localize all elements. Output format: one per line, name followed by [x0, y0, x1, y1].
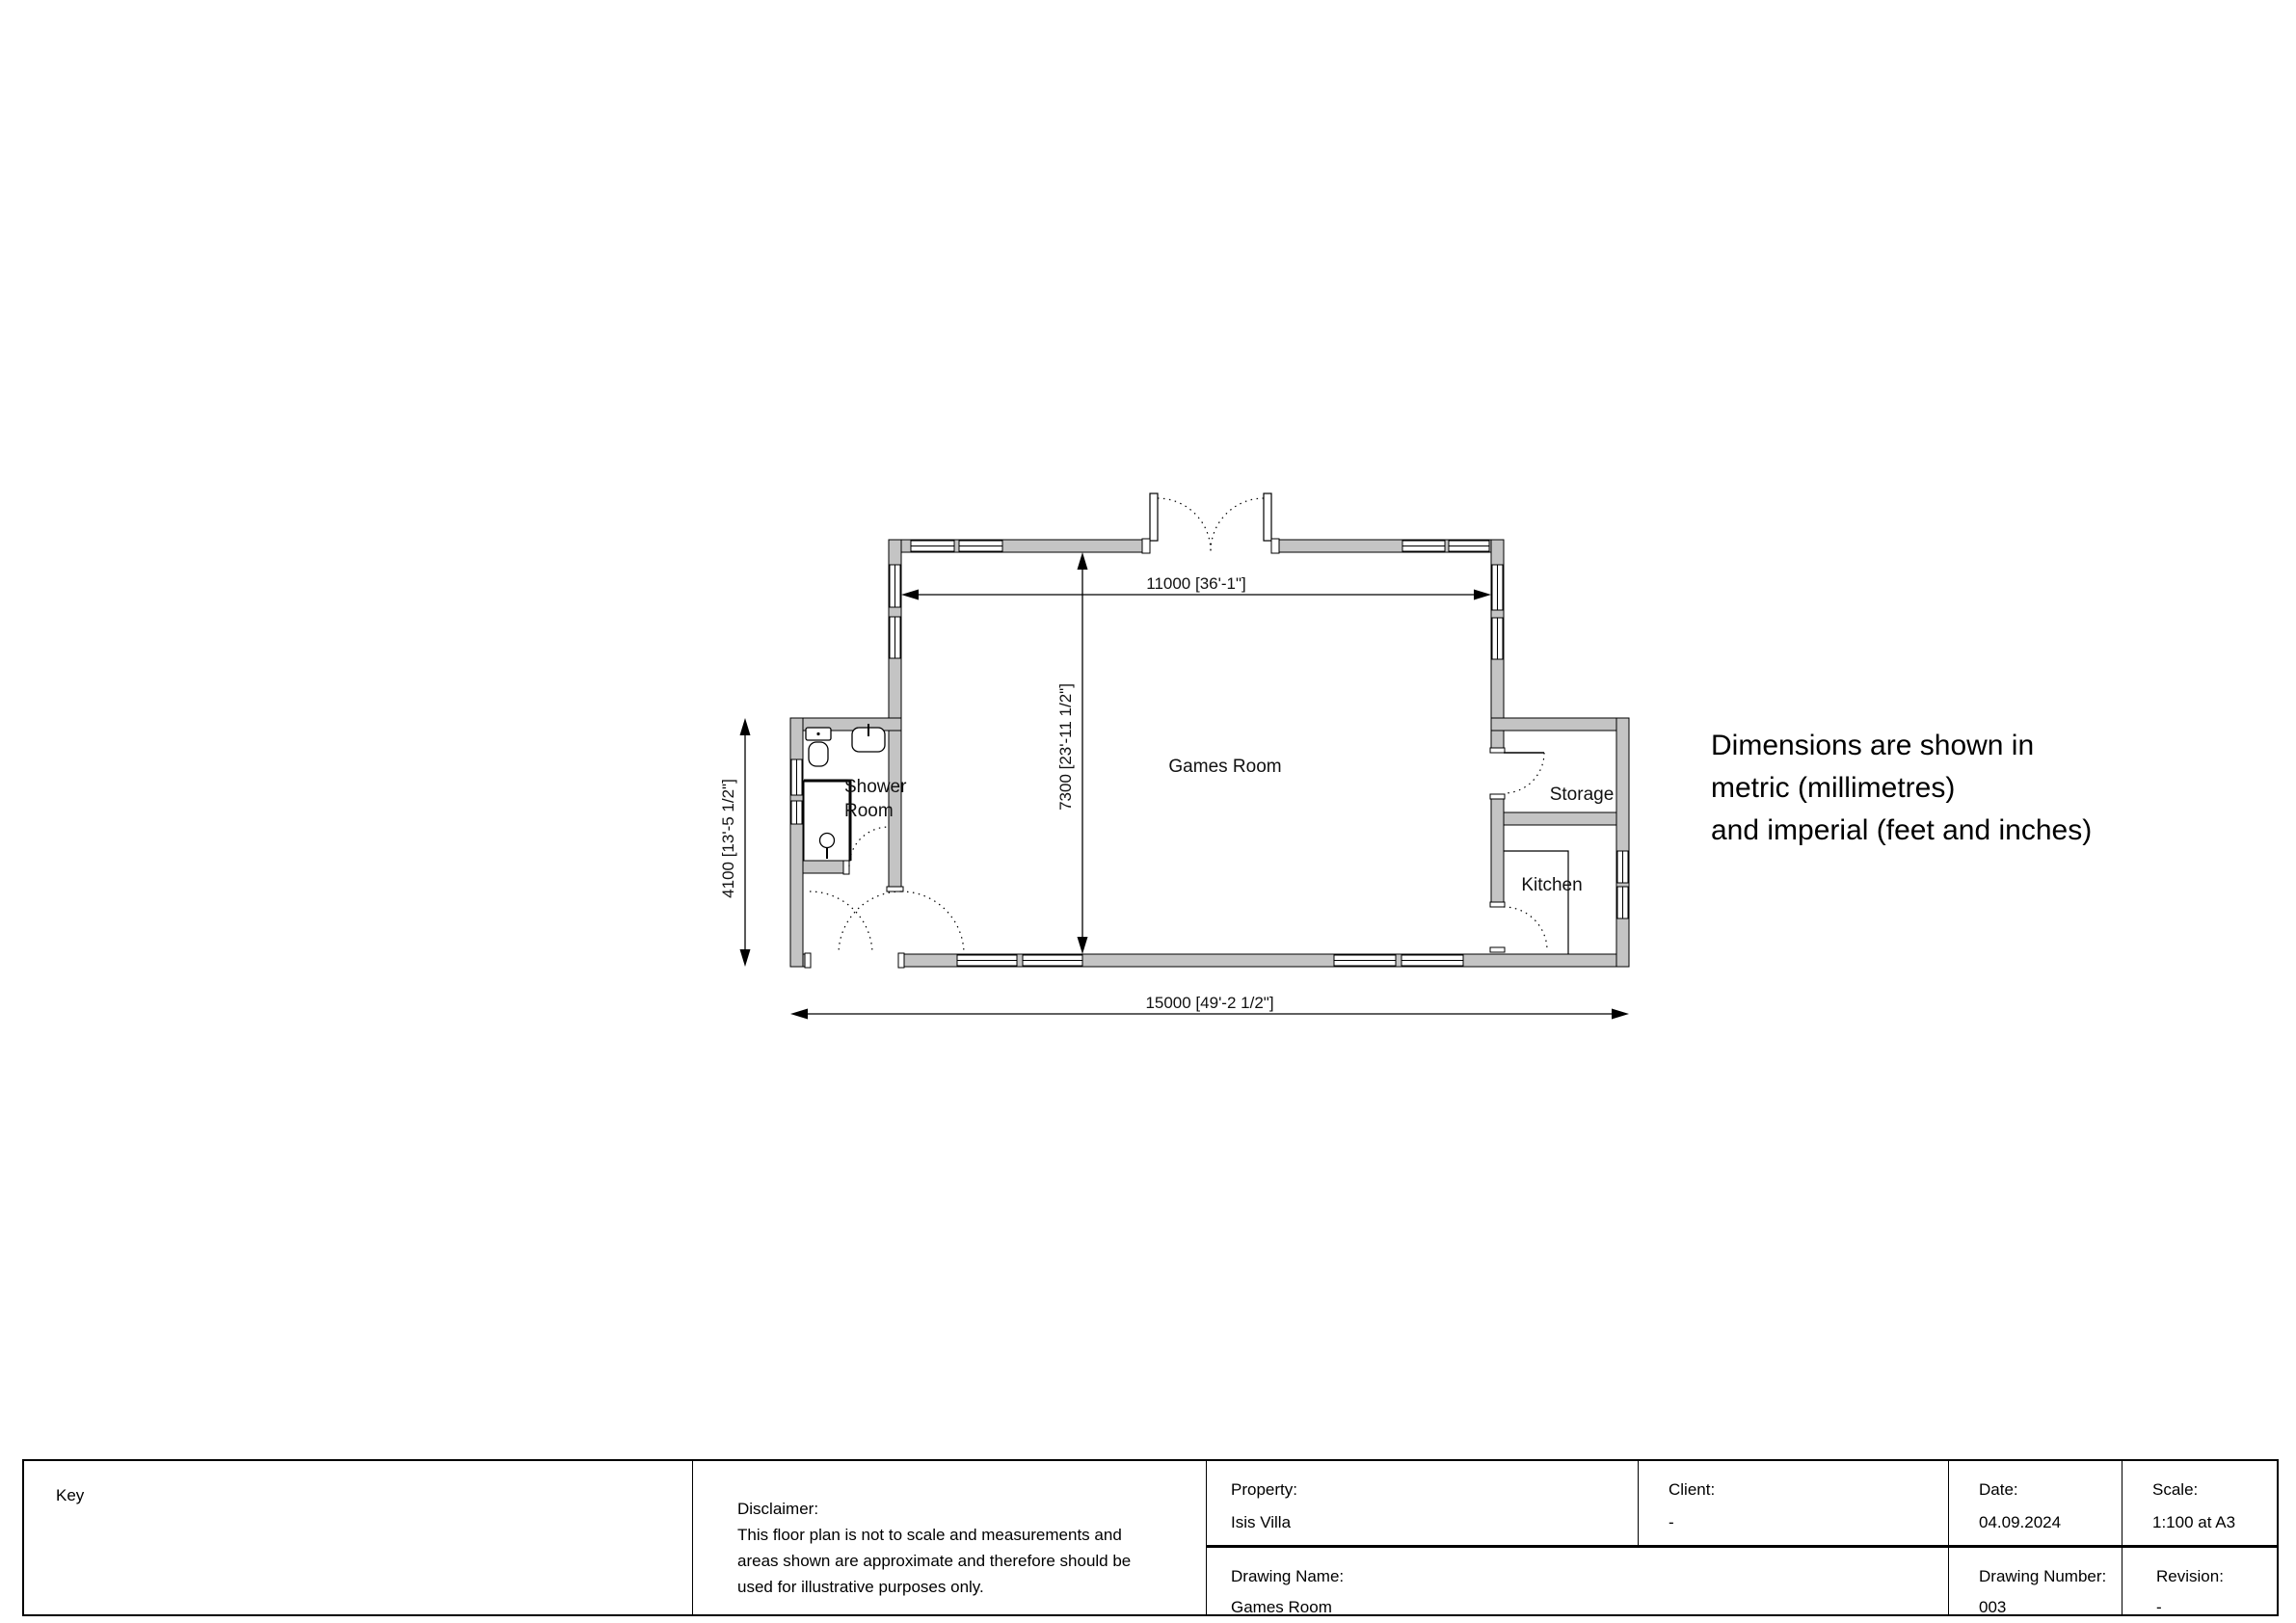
arrowhead [901, 590, 919, 600]
door-swing-arcs-group [810, 498, 1547, 954]
date-value: 04.09.2024 [1979, 1513, 2061, 1532]
toilet-button [816, 732, 819, 735]
jamb [843, 860, 849, 874]
units-annotation: Dimensions are shown in metric (millimet… [1711, 725, 2092, 852]
shower-door-arc [849, 827, 889, 866]
arrowhead [790, 1009, 808, 1020]
arrowhead [1612, 1009, 1629, 1020]
shower-head [820, 834, 835, 848]
units-annotation-line2: metric (millimetres) [1711, 767, 2092, 810]
jamb [1490, 748, 1505, 753]
client-value: - [1669, 1513, 1674, 1532]
wall-storage-kitchen-divider [1504, 812, 1616, 825]
jamb [1142, 539, 1150, 553]
arrowhead [1474, 590, 1491, 600]
entrance-door-right-arc [839, 891, 901, 954]
dimension-interior-depth: 7300 [23'-11 1/2"] [1056, 683, 1075, 811]
page: { "annotation": { "line1": "Dimensions a… [0, 0, 2296, 1623]
property-value: Isis Villa [1231, 1513, 1291, 1532]
revision-label: Revision: [2156, 1567, 2224, 1586]
scale-value: 1:100 at A3 [2152, 1513, 2235, 1532]
arrowhead [1078, 552, 1088, 570]
bay-door-right-arc [1211, 498, 1264, 551]
scale-label: Scale: [2152, 1480, 2198, 1500]
title-block-row-divider [1206, 1545, 2277, 1548]
wall-shower-bottom [803, 861, 843, 873]
drawing-number-value: 003 [1979, 1598, 2006, 1617]
title-block-divider [2122, 1461, 2122, 1614]
title-block-divider [692, 1461, 693, 1614]
kitchen-counter [1504, 851, 1568, 954]
wall-wing-right-top [1491, 718, 1629, 731]
key-label: Key [56, 1486, 84, 1505]
room-label-shower-line1: Shower [844, 777, 907, 797]
title-block-divider [1638, 1461, 1639, 1546]
revision-value: - [2156, 1598, 2162, 1617]
wall-wing-right-side [1616, 718, 1629, 967]
games-room-door-arc [901, 891, 964, 954]
arrowhead [740, 949, 751, 967]
property-label: Property: [1231, 1480, 1297, 1500]
jamb [887, 887, 903, 891]
jamb [805, 953, 811, 968]
disclaimer-line3: used for illustrative purposes only. [737, 1574, 1131, 1600]
date-label: Date: [1979, 1480, 2018, 1500]
disclaimer-heading: Disclaimer: [737, 1496, 1131, 1522]
arrowhead [740, 718, 751, 735]
door-jambs-group [805, 539, 1505, 968]
client-label: Client: [1669, 1480, 1715, 1500]
arrowhead [1078, 937, 1088, 954]
room-label-games-room: Games Room [1168, 757, 1281, 777]
room-label-shower-line2: Room [844, 801, 894, 821]
dimension-overall-width: 15000 [49'-2 1/2"] [1145, 994, 1273, 1012]
title-block-divider [1948, 1461, 1949, 1614]
drawing-name-value: Games Room [1231, 1598, 1332, 1617]
room-label-kitchen: Kitchen [1521, 875, 1582, 895]
jamb [1490, 947, 1505, 952]
jamb [1490, 794, 1505, 799]
jamb [898, 953, 904, 968]
bay-door-left-arc [1158, 498, 1211, 551]
bay-wall-right [1264, 493, 1271, 541]
units-annotation-line1: Dimensions are shown in [1711, 725, 2092, 767]
room-label-storage: Storage [1550, 785, 1615, 805]
kitchen-door-arc [1504, 907, 1547, 950]
entrance-door-left-arc [810, 891, 872, 954]
wall-wing-left-side [790, 718, 803, 967]
entrance-bay-group [1150, 493, 1271, 541]
dimension-wing-height: 4100 [13'-5 1/2"] [719, 779, 737, 898]
disclaimer-line1: This floor plan is not to scale and meas… [737, 1522, 1131, 1548]
bay-wall-left [1150, 493, 1158, 541]
disclaimer-line2: areas shown are approximate and therefor… [737, 1548, 1131, 1574]
storage-door-arc [1504, 753, 1544, 793]
jamb [1271, 539, 1279, 553]
toilet-bowl [809, 742, 828, 766]
units-annotation-line3: and imperial (feet and inches) [1711, 810, 2092, 852]
title-block: Key Disclaimer: This floor plan is not t… [22, 1459, 2279, 1616]
jamb [1490, 902, 1505, 907]
wall-main-right-mid [1491, 799, 1504, 902]
drawing-number-label: Drawing Number: [1979, 1567, 2106, 1586]
dimension-interior-width: 11000 [36'-1"] [1146, 574, 1246, 593]
title-block-divider [1206, 1461, 1207, 1614]
drawing-name-label: Drawing Name: [1231, 1567, 1344, 1586]
